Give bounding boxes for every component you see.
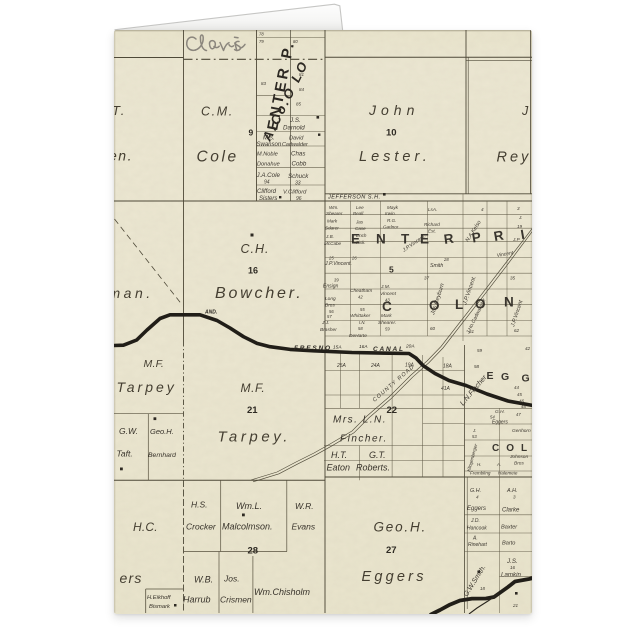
svg-text:18A: 18A — [443, 364, 453, 370]
svg-text:Genhorn: Genhorn — [512, 428, 531, 434]
svg-text:28: 28 — [443, 257, 449, 262]
svg-text:M.Noble: M.Noble — [257, 152, 278, 158]
svg-text:Ench: Ench — [356, 233, 367, 238]
svg-text:Bros: Bros — [514, 461, 524, 467]
svg-text:59: 59 — [385, 327, 390, 332]
svg-text:A.: A. — [496, 462, 501, 467]
svg-text:Harrub: Harrub — [183, 595, 211, 605]
svg-text:LsA.: LsA. — [428, 207, 437, 212]
svg-text:Malcolmson.: Malcolmson. — [222, 522, 273, 532]
svg-text:J.M.: J.M. — [380, 284, 390, 290]
svg-text:Jas: Jas — [355, 220, 364, 225]
svg-text:CANAL: CANAL — [373, 346, 405, 353]
svg-text:H.: H. — [477, 462, 481, 467]
svg-text:Jos.: Jos. — [223, 574, 240, 584]
svg-text:M.F.: M.F. — [144, 358, 164, 370]
svg-text:62: 62 — [514, 328, 520, 333]
svg-text:78: 78 — [259, 32, 264, 37]
svg-text:27: 27 — [386, 545, 397, 556]
svg-text:Long: Long — [325, 296, 336, 302]
svg-text:Barto: Barto — [502, 541, 515, 547]
svg-text:Fincher.: Fincher. — [340, 434, 388, 445]
svg-text:C.M.: C.M. — [201, 105, 234, 119]
svg-text:Geo.H.: Geo.H. — [150, 427, 174, 436]
svg-text:81: 81 — [299, 72, 305, 77]
svg-text:Rinehart: Rinehart — [468, 542, 488, 548]
svg-text:Eggers: Eggers — [492, 420, 508, 426]
svg-text:Tarpey: Tarpey — [117, 379, 177, 395]
svg-text:Tarpey.: Tarpey. — [218, 429, 292, 446]
svg-text:W.R.: W.R. — [295, 501, 314, 511]
svg-text:Whittaker: Whittaker — [350, 313, 371, 319]
svg-text:Rey: Rey — [497, 150, 532, 166]
svg-text:J.S.: J.S. — [506, 558, 518, 565]
svg-text:44: 44 — [514, 385, 519, 390]
svg-text:84: 84 — [299, 87, 305, 92]
svg-text:Lee: Lee — [356, 205, 364, 210]
svg-text:H.T.: H.T. — [331, 450, 347, 460]
svg-text:Halemeie: Halemeie — [498, 471, 518, 476]
svg-text:Richard: Richard — [424, 222, 440, 227]
svg-text:Swanson: Swanson — [257, 142, 282, 148]
svg-text:Lester.: Lester. — [359, 149, 431, 165]
svg-text:COL: COL — [492, 443, 532, 454]
svg-text:Donahue: Donahue — [257, 162, 280, 168]
svg-text:Mrs. L.N.: Mrs. L.N. — [333, 415, 387, 426]
svg-text:Hancook: Hancook — [467, 526, 487, 532]
svg-text:Frembling: Frembling — [470, 471, 491, 476]
svg-text:18: 18 — [480, 586, 485, 591]
svg-text:Darnold: Darnold — [283, 125, 305, 132]
svg-text:Cobb: Cobb — [292, 161, 307, 168]
svg-text:ers: ers — [120, 570, 143, 586]
svg-text:John: John — [368, 102, 419, 118]
svg-text:J: J — [521, 104, 529, 118]
svg-text:Garlnor: Garlnor — [383, 225, 399, 230]
svg-text:58: 58 — [474, 364, 480, 369]
svg-text:3: 3 — [513, 495, 516, 500]
svg-text:42: 42 — [358, 295, 363, 300]
svg-text:JEFFERSON S.H.: JEFFERSON S.H. — [327, 195, 381, 201]
svg-text:3: 3 — [517, 206, 520, 211]
svg-text:Wm.L.: Wm.L. — [236, 501, 262, 511]
svg-text:37: 37 — [424, 276, 430, 281]
svg-text:Mrs.: Mrs. — [263, 136, 275, 142]
svg-text:Fisk.: Fisk. — [356, 240, 366, 245]
svg-text:Mark: Mark — [381, 313, 392, 319]
svg-text:McCabe: McCabe — [324, 241, 342, 246]
svg-text:Schuck: Schuck — [288, 173, 309, 180]
svg-text:48: 48 — [521, 404, 526, 409]
svg-text:94: 94 — [264, 180, 270, 186]
svg-text:35: 35 — [510, 276, 516, 281]
svg-text:Wm.Chisholm: Wm.Chisholm — [254, 587, 311, 597]
svg-text:C.H.: C.H. — [241, 242, 270, 256]
svg-text:en.: en. — [114, 148, 133, 164]
svg-text:J.J.: J.J. — [321, 320, 329, 326]
svg-text:Sdarer: Sdarer — [325, 226, 339, 231]
svg-text:Irwin.: Irwin. — [385, 211, 396, 216]
svg-text:R.G.: R.G. — [387, 218, 396, 223]
svg-text:J.P: J.P — [512, 237, 521, 242]
svg-text:Cadwalder: Cadwalder — [282, 142, 308, 148]
svg-text:G.T.: G.T. — [369, 450, 386, 460]
svg-text:4: 4 — [476, 495, 479, 500]
svg-text:22: 22 — [387, 405, 398, 416]
svg-text:Shearer.: Shearer. — [378, 320, 396, 326]
svg-text:21: 21 — [247, 405, 258, 416]
svg-text:E: E — [487, 370, 494, 382]
svg-text:Eggers: Eggers — [467, 506, 486, 512]
svg-text:Bros: Bros — [325, 303, 335, 309]
svg-text:H.C.: H.C. — [133, 520, 158, 534]
svg-text:16: 16 — [248, 266, 258, 276]
svg-text:Lamkin: Lamkin — [501, 572, 522, 579]
svg-text:4: 4 — [481, 207, 484, 212]
svg-text:Eggers: Eggers — [362, 569, 427, 585]
svg-text:DeHarte: DeHarte — [349, 333, 367, 339]
svg-text:85: 85 — [296, 102, 302, 107]
svg-text:Brasher: Brasher — [320, 327, 337, 333]
svg-text:33: 33 — [295, 181, 301, 187]
svg-text:Bismark: Bismark — [149, 604, 171, 610]
svg-text:Shearer: Shearer — [326, 211, 343, 216]
svg-text:Baxter: Baxter — [501, 525, 518, 531]
svg-text:Chas: Chas — [291, 151, 305, 158]
svg-text:Bernhard: Bernhard — [148, 452, 176, 459]
svg-text:55: 55 — [360, 307, 365, 312]
svg-text:A.H.: A.H. — [506, 488, 517, 494]
svg-text:FRESNO: FRESNO — [294, 345, 332, 352]
svg-text:Cheatham: Cheatham — [350, 288, 372, 294]
svg-text:Sisters: Sisters — [259, 196, 277, 202]
svg-text:16A: 16A — [359, 344, 368, 350]
svg-text:28: 28 — [248, 546, 259, 557]
svg-text:Mayk: Mayk — [387, 205, 399, 210]
svg-text:59: 59 — [477, 348, 483, 353]
svg-text:Evans: Evans — [292, 522, 316, 532]
svg-text:M.F.: M.F. — [241, 381, 266, 395]
svg-text:V.Clifford: V.Clifford — [283, 190, 307, 196]
svg-text:Beall.: Beall. — [353, 211, 365, 216]
svg-text:Ensign: Ensign — [323, 284, 339, 290]
svg-text:Taft.: Taft. — [117, 449, 133, 459]
svg-text:G.H.: G.H. — [495, 409, 505, 415]
svg-text:H.Eikhoff: H.Eikhoff — [147, 595, 172, 601]
svg-text:83: 83 — [261, 81, 267, 86]
svg-text:J.S.: J.S. — [289, 117, 301, 124]
svg-text:10: 10 — [386, 128, 397, 139]
svg-text:79: 79 — [259, 39, 264, 44]
svg-text:41A: 41A — [441, 386, 451, 392]
svg-text:9: 9 — [249, 128, 254, 138]
svg-text:W.B.: W.B. — [194, 575, 213, 585]
svg-text:25: 25 — [328, 256, 334, 261]
svg-text:16: 16 — [510, 565, 516, 570]
svg-text:Roberts.: Roberts. — [356, 463, 390, 473]
svg-text:Cole: Cole — [197, 149, 239, 166]
svg-text:N: N — [504, 295, 514, 310]
svg-text:Wm.: Wm. — [329, 205, 338, 210]
svg-text:Clarke: Clarke — [502, 508, 520, 514]
svg-text:5: 5 — [389, 265, 394, 275]
svg-text:G: G — [501, 371, 509, 383]
svg-text:15A: 15A — [333, 345, 342, 351]
svg-text:46: 46 — [519, 399, 524, 404]
svg-text:Eaton: Eaton — [327, 463, 351, 473]
svg-text:J.: J. — [518, 215, 523, 220]
svg-text:80: 80 — [293, 39, 298, 44]
svg-text:Crocker: Crocker — [186, 522, 217, 532]
svg-text:42: 42 — [525, 346, 531, 351]
svg-text:J.D.: J.D. — [470, 518, 480, 524]
svg-text:47: 47 — [516, 412, 521, 417]
svg-text:96: 96 — [296, 196, 302, 202]
svg-text:J.: J. — [472, 428, 476, 433]
svg-text:43: 43 — [385, 298, 390, 303]
svg-text:Est.: Est. — [428, 229, 436, 234]
svg-text:J.P.Vincent.: J.P.Vincent. — [324, 261, 352, 267]
svg-text:60: 60 — [430, 326, 436, 331]
svg-text:G: G — [522, 373, 530, 385]
svg-text:J.B.: J.B. — [325, 234, 334, 239]
svg-text:Geo.H.: Geo.H. — [374, 520, 428, 535]
svg-text:David: David — [289, 136, 304, 142]
svg-text:J.A.Cole: J.A.Cole — [256, 172, 281, 179]
svg-text:25A: 25A — [336, 363, 347, 369]
svg-text:I.N.: I.N. — [359, 320, 366, 325]
svg-text:19: 19 — [517, 224, 523, 229]
svg-text:24A: 24A — [370, 363, 381, 369]
svg-text:Smith: Smith — [430, 263, 443, 269]
svg-text:53: 53 — [472, 434, 477, 439]
svg-text:39: 39 — [334, 278, 339, 283]
svg-text:Case: Case — [355, 226, 366, 231]
svg-text:H.S.: H.S. — [191, 500, 208, 510]
svg-text:Clifford: Clifford — [257, 189, 277, 195]
svg-text:G.W.: G.W. — [119, 426, 138, 436]
svg-text:G.H.: G.H. — [470, 488, 481, 494]
svg-text:Mark: Mark — [327, 219, 338, 224]
svg-text:58: 58 — [358, 326, 363, 331]
svg-text:Crismen: Crismen — [220, 595, 252, 605]
svg-text:57: 57 — [327, 314, 332, 319]
svg-text:A.: A. — [472, 536, 478, 542]
svg-text:Vincent: Vincent — [380, 291, 397, 297]
svg-text:20A: 20A — [405, 344, 415, 350]
svg-text:T.: T. — [114, 103, 126, 118]
svg-text:21: 21 — [512, 603, 519, 608]
svg-text:Bowcher.: Bowcher. — [215, 285, 304, 302]
svg-text:AND.: AND. — [204, 310, 217, 316]
svg-text:N: N — [376, 232, 386, 247]
svg-text:Johnson: Johnson — [509, 454, 528, 460]
svg-text:26: 26 — [351, 256, 357, 261]
svg-text:45: 45 — [517, 392, 522, 397]
svg-text:man.: man. — [114, 285, 154, 301]
